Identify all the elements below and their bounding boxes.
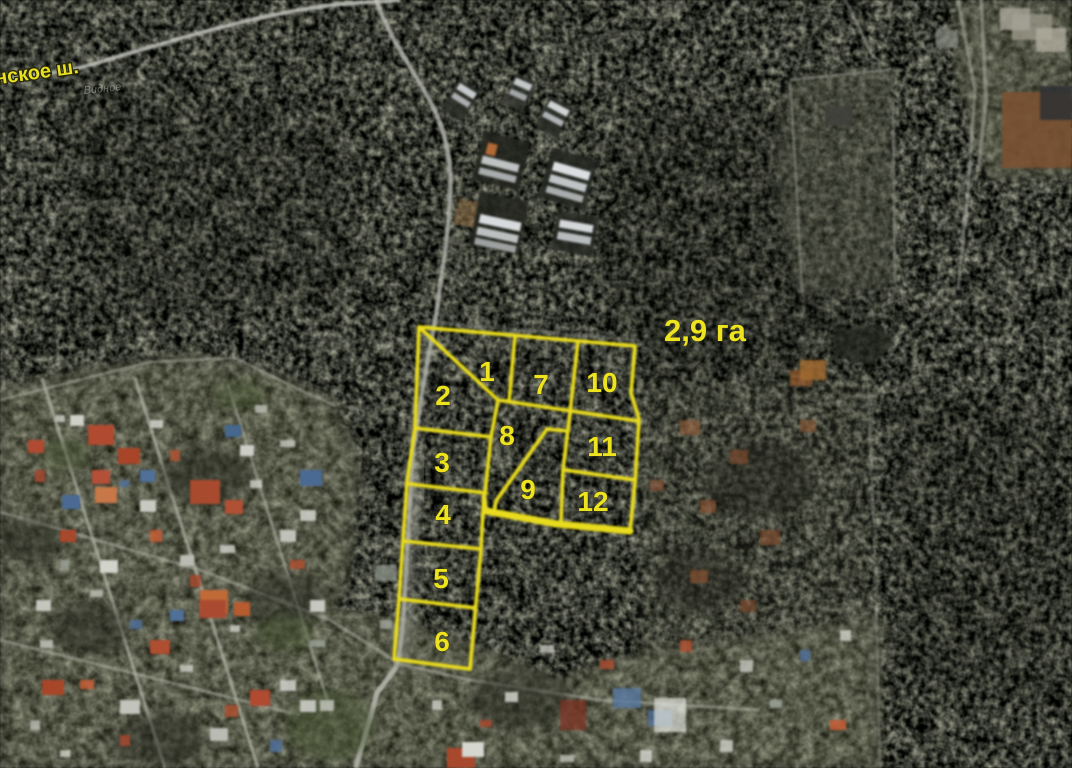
svg-text:10: 10 — [586, 367, 617, 398]
svg-text:11: 11 — [587, 431, 617, 462]
svg-text:12: 12 — [577, 486, 608, 517]
svg-text:6: 6 — [434, 626, 450, 657]
svg-text:2: 2 — [435, 380, 451, 411]
svg-text:7: 7 — [533, 369, 549, 400]
svg-text:1: 1 — [479, 356, 495, 387]
svg-text:4: 4 — [435, 499, 451, 530]
svg-text:5: 5 — [433, 563, 449, 594]
svg-text:3: 3 — [434, 447, 450, 478]
svg-text:9: 9 — [520, 474, 536, 505]
svg-text:8: 8 — [499, 420, 515, 451]
svg-text:2,9 га: 2,9 га — [664, 313, 747, 348]
